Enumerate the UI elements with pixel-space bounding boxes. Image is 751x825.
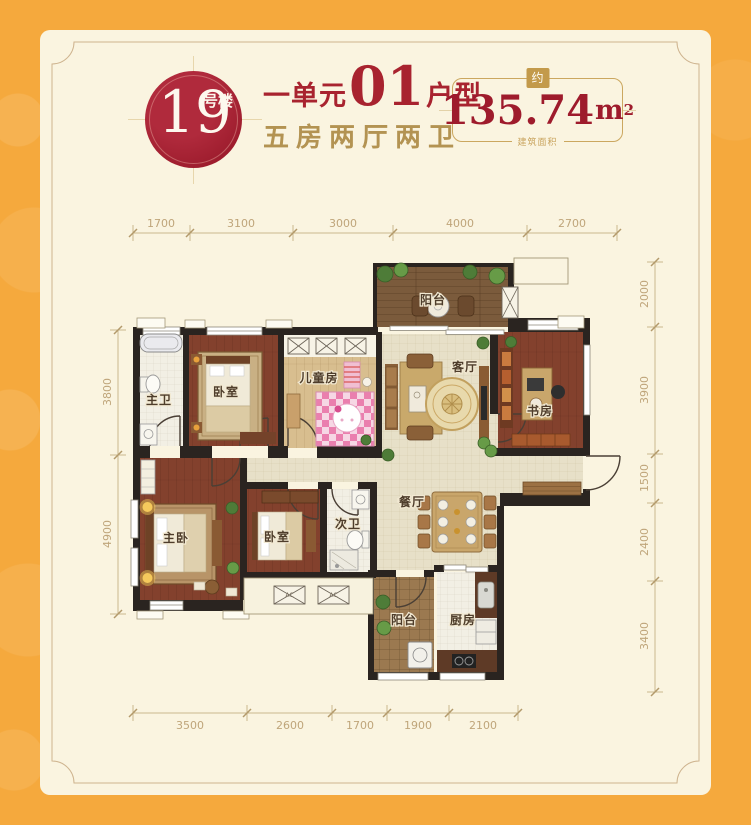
label-balcony-top: 阳台 — [420, 292, 446, 307]
dim-top-0: 1700 — [147, 217, 175, 230]
dim-left-1: 4900 — [101, 520, 114, 548]
label-master-bedroom: 主卧 — [163, 530, 189, 545]
dim-top-2: 3000 — [329, 217, 357, 230]
bedroom2-furniture — [252, 491, 318, 560]
dimension-right: 2000 3900 1500 2400 3400 — [638, 258, 663, 696]
flue-shaft — [502, 287, 518, 318]
dim-bottom-3: 1900 — [404, 719, 432, 732]
label-kids-room: 儿童房 — [298, 370, 338, 385]
dim-right-0: 2000 — [638, 280, 651, 308]
label-kitchen: 厨房 — [450, 612, 476, 627]
dim-bottom-2: 1700 — [346, 719, 374, 732]
label-bedroom1: 卧室 — [213, 384, 239, 399]
dim-left-0: 3800 — [101, 378, 114, 406]
dim-top-1: 3100 — [227, 217, 255, 230]
dim-right-3: 2400 — [638, 528, 651, 556]
floor-plan: AC AC — [0, 0, 751, 825]
ac-unit-label: AC — [285, 592, 293, 599]
label-study: 书房 — [527, 403, 553, 418]
label-bedroom2: 卧室 — [264, 529, 290, 544]
entry-doormat — [523, 482, 581, 495]
label-dining: 餐厅 — [399, 494, 425, 509]
dim-bottom-4: 2100 — [469, 719, 497, 732]
dimension-bottom: 3500 2600 1700 1900 2100 — [129, 705, 522, 732]
dim-right-4: 3400 — [638, 622, 651, 650]
dim-top-4: 2700 — [558, 217, 586, 230]
label-living: 客厅 — [451, 359, 478, 374]
study-doorway-floor — [490, 414, 498, 448]
corner-window-outline — [514, 258, 568, 284]
label-second-bath: 次卫 — [335, 516, 361, 531]
dimension-left: 3800 4900 — [101, 326, 126, 618]
ac-platform: AC AC — [244, 578, 373, 614]
dim-top-3: 4000 — [446, 217, 474, 230]
label-master-bath: 主卫 — [146, 392, 172, 407]
dim-bottom-1: 2600 — [276, 719, 304, 732]
dim-right-1: 3900 — [638, 376, 651, 404]
dim-bottom-0: 3500 — [176, 719, 204, 732]
dim-right-2: 1500 — [638, 464, 651, 492]
dimension-top: 1700 3100 3000 4000 2700 — [129, 217, 621, 241]
floorplan-poster: { "header": { "badge": { "number": "19",… — [0, 0, 751, 825]
ac-unit-label: AC — [329, 592, 337, 599]
kids-wardrobe-boxes — [288, 338, 366, 354]
label-balcony-bottom: 阳台 — [391, 612, 417, 627]
